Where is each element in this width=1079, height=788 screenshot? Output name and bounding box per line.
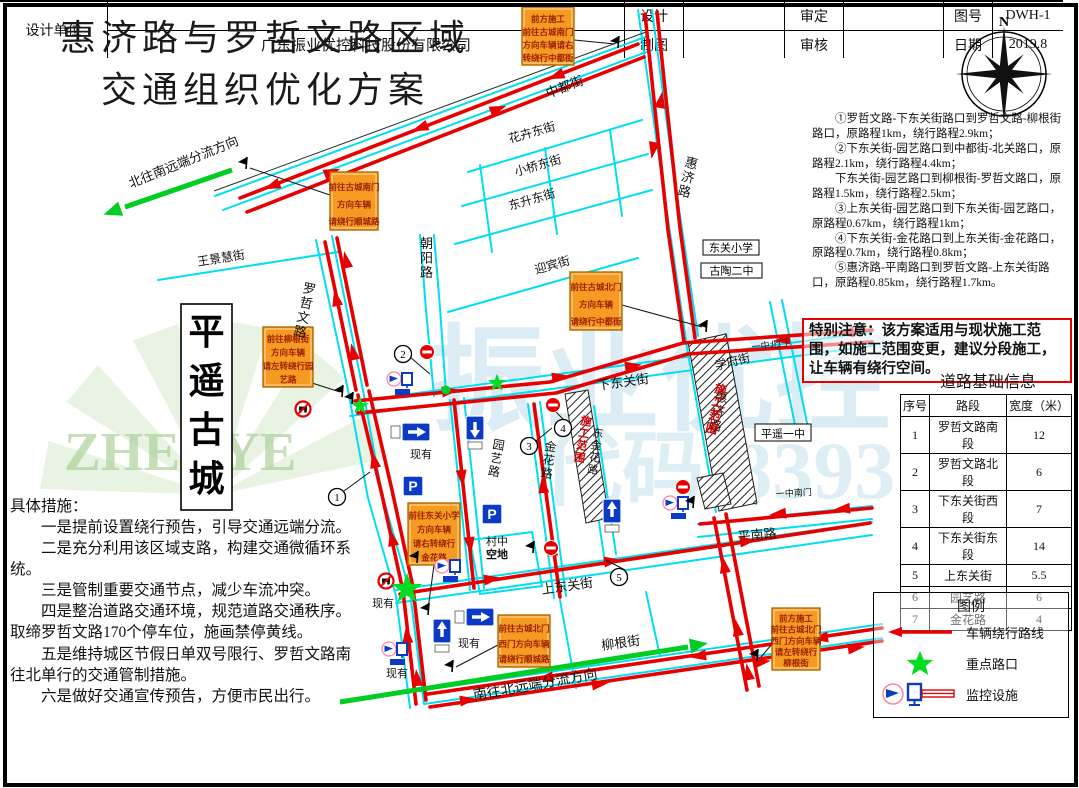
table-cell: 3: [901, 491, 930, 528]
svg-text:花卉东街: 花卉东街: [507, 118, 557, 146]
table-cell: 6: [1006, 454, 1071, 491]
svg-text:古陶二中: 古陶二中: [710, 264, 754, 278]
svg-text:艺路: 艺路: [279, 375, 297, 385]
street-label: 空地: [486, 547, 508, 561]
svg-text:P: P: [487, 506, 496, 522]
col-road: 路段: [930, 395, 1007, 417]
legend-label: 重点路口: [966, 654, 1018, 673]
legend-item-camera: 监控设施: [874, 679, 1068, 709]
svg-text:转绕行中都街: 转绕行中都街: [522, 53, 574, 63]
table-row: 2罗哲文路北段6: [901, 454, 1072, 491]
street-line: [646, 592, 660, 656]
svg-text:请绕行顺城路: 请绕行顺城路: [498, 654, 550, 664]
measure-item: 四是整治道路交通环境，规范道路交通秩序。取缔罗哲文路170个停车位，施画禁停黄线…: [10, 601, 366, 643]
landmark-box: 平遥一中: [755, 424, 811, 441]
right-arrow-sign: [391, 423, 430, 441]
sign-flag: [610, 36, 619, 48]
legend-label: 车辆绕行路线: [966, 623, 1044, 642]
title-line-2: 交通组织优化方案: [40, 64, 490, 116]
node-number: 2: [395, 346, 412, 363]
measures-panel: 具体措施： 一是提前设置绕行预告，引导交通远端分流。二是充分利用该区域支路，构建…: [10, 496, 366, 707]
camera-sign: [387, 372, 412, 395]
parking-sign: P: [403, 476, 423, 496]
table-cell: 7: [1006, 491, 1071, 528]
no-vehicles-sign: [379, 574, 394, 589]
table-row: 1罗哲文路南段12: [901, 417, 1072, 454]
street-label: 东升东街: [507, 186, 557, 213]
table-cell: 5.5: [1006, 565, 1071, 587]
table-cell: 4: [901, 528, 930, 565]
legend-item-key-node: 重点路口: [874, 648, 1068, 678]
svg-text:村中: 村中: [486, 534, 508, 548]
col-width: 宽度（米）: [1006, 395, 1071, 417]
compass-rose-icon: N: [948, 10, 1060, 126]
detour-route: [645, 14, 684, 342]
svg-text:上东关街: 上东关街: [540, 575, 594, 597]
svg-text:请绕行中都街: 请绕行中都街: [570, 317, 622, 327]
detour-note: ④下东关街-金花路口到上东关街-金花路口，原路程0.7km，绕行路程0.8km；: [812, 232, 1070, 262]
detour-notice-box: 前往古城南门方向车辆请绕行顺城路: [328, 172, 380, 230]
svg-text:请左转绕行: 请左转绕行: [775, 647, 818, 657]
svg-text:现有: 现有: [372, 596, 394, 610]
route-arrow: [717, 555, 731, 574]
svg-text:西门方向车辆: 西门方向车辆: [770, 636, 822, 646]
svg-text:请左转绕行园: 请左转绕行园: [262, 361, 313, 371]
street-line: [158, 252, 338, 280]
svg-text:方向车辆: 方向车辆: [337, 199, 372, 209]
col-index: 序号: [901, 395, 930, 417]
signal-dot: [442, 386, 451, 395]
sign-flag: [420, 603, 429, 615]
camera-sign: [382, 642, 407, 665]
street-label: 一中南门: [776, 486, 813, 499]
svg-text:前往东关小学: 前往东关小学: [408, 511, 460, 521]
legend-item-detour: 车辆绕行路线: [874, 617, 1068, 647]
node-number: 4: [555, 420, 572, 437]
sign-flag: [525, 541, 534, 553]
svg-text:朝阳路: 朝阳路: [420, 236, 433, 280]
road-table-title: 道路基础信息: [900, 368, 1076, 392]
street-label: 迎宾街: [533, 253, 572, 277]
legend-title: 图例: [874, 596, 1068, 616]
measure-item: 二是充分利用该区域支路，构建交通微循环系统。: [10, 538, 366, 580]
svg-text:请绕行顺城路: 请绕行顺城路: [328, 217, 380, 227]
svg-text:遥: 遥: [188, 361, 224, 401]
svg-text:现有: 现有: [458, 636, 480, 650]
svg-text:惠济路: 惠济路: [676, 154, 699, 200]
svg-text:古: 古: [188, 410, 224, 450]
svg-text:前往古城北门: 前往古城北门: [770, 625, 821, 635]
no-vehicles-sign: [296, 402, 311, 417]
svg-text:现有: 现有: [410, 447, 432, 461]
svg-text:方向车辆请右: 方向车辆请右: [522, 40, 574, 50]
street-label: 现有: [372, 596, 394, 610]
detour-notice-box: 前方施工前往古城北门西门方向车辆请左转绕行柳根街: [770, 608, 822, 670]
legend-label: 监控设施: [966, 685, 1018, 704]
street-label: 王景慧街: [196, 247, 246, 269]
street-label: 惠济路: [676, 154, 699, 200]
table-cell: 下东关街东段: [930, 528, 1007, 565]
detour-note: ③上东关街-园艺路口到下东关街-园艺路口，原路程0.67km，绕行路程1km；: [812, 202, 1070, 232]
table-row: 4下东关街东段14: [901, 528, 1072, 565]
green-diversion-arrow: [101, 202, 123, 222]
svg-text:请右转绕行: 请右转绕行: [413, 539, 456, 549]
svg-text:4: 4: [560, 423, 566, 435]
title-line-1: 惠济路与罗哲文路区域: [40, 12, 490, 64]
table-row: 3下东关街西段7: [901, 491, 1072, 528]
sign-flag: [238, 157, 247, 169]
svg-text:前往古城南门: 前往古城南门: [522, 27, 573, 37]
page-title: 惠济路与罗哲文路区域 交通组织优化方案: [40, 12, 490, 116]
svg-text:前往古城北门: 前往古城北门: [570, 282, 621, 292]
detour-note: 下东关街-园艺路口到柳根街-罗哲文路口，原路程1.5km，绕行路程2.5km；: [812, 172, 1070, 202]
measure-item: 六是做好交通宣传预告，方便市民出行。: [10, 686, 366, 707]
svg-text:2: 2: [400, 349, 406, 361]
detour-note: ②下东关街-园艺路口到中都街-北关路口，原路程2.1km，绕行路程4.4km；: [812, 142, 1070, 172]
table-cell: 2: [901, 454, 930, 491]
camera-sign: [435, 559, 460, 582]
table-cell: 罗哲文路北段: [930, 454, 1007, 491]
svg-text:方向车辆: 方向车辆: [417, 525, 452, 535]
svg-text:P: P: [408, 478, 417, 494]
svg-text:平南路: 平南路: [737, 526, 777, 544]
street-line: [610, 130, 622, 216]
table-cell: 12: [1006, 417, 1071, 454]
no-entry-sign: [676, 480, 691, 495]
svg-text:柳根街: 柳根街: [783, 658, 809, 668]
table-row: 5上东关街5.5: [901, 565, 1072, 587]
detour-note: ①罗哲文路-下东关街路口到罗哲文路-柳根街路口，原路程1km，绕行路程2.9km…: [812, 112, 1070, 142]
landmark-box: 东关小学: [703, 240, 759, 255]
svg-text:王景慧街: 王景慧街: [196, 247, 246, 269]
table-cell: 下东关街西段: [930, 491, 1007, 528]
svg-text:前往古城南门: 前往古城南门: [328, 182, 379, 192]
street-label: 现有: [386, 666, 408, 680]
detour-notes: ①罗哲文路-下东关街路口到罗哲文路-柳根街路口，原路程1km，绕行路程2.9km…: [812, 112, 1070, 291]
street-label: 上东关街: [540, 575, 594, 597]
parking-sign: P: [482, 504, 502, 524]
camera-icon: [874, 679, 966, 709]
svg-text:前往古城北门: 前往古城北门: [498, 624, 549, 634]
svg-text:现有: 现有: [386, 666, 408, 680]
street-label: 村中: [486, 534, 508, 548]
table-cell: 5: [901, 565, 930, 587]
detour-notice-box: 前方施工前往古城南门方向车辆请右转绕行中都街: [522, 7, 574, 65]
svg-text:一中南门: 一中南门: [776, 486, 813, 499]
measure-item: 五是维持城区节假日单双号限行、罗哲文路南往北单行的交通管制措施。: [10, 644, 366, 686]
street-label: 现有: [458, 636, 480, 650]
node-number: 5: [611, 569, 628, 586]
detour-route-icon: [874, 625, 966, 639]
svg-text:前方施工: 前方施工: [779, 613, 814, 623]
down-arrow-sign: [466, 416, 484, 449]
svg-text:方向车辆: 方向车辆: [271, 348, 306, 358]
node-number: 3: [521, 438, 538, 455]
key-intersection-star-icon: [874, 649, 966, 677]
detour-notice-box: 前往古城北门方向车辆请绕行中都街: [570, 272, 622, 330]
svg-text:方向车辆: 方向车辆: [579, 299, 614, 309]
watermark-text: ZHENYE: [64, 421, 296, 482]
svg-text:5: 5: [616, 572, 622, 584]
svg-text:北往南远端分流方向: 北往南远端分流方向: [127, 133, 241, 191]
drawing-sheet: 振业优控代码:8393ZHENYE前方施工前往古城南门方向车辆请右转绕行中都街前…: [0, 0, 1079, 788]
no-entry-sign: [544, 541, 559, 556]
svg-text:迎宾街: 迎宾街: [533, 253, 572, 277]
svg-text:东关小学: 东关小学: [709, 241, 753, 255]
landmark-box: 古陶二中: [701, 263, 762, 278]
table-cell: 罗哲文路南段: [930, 417, 1007, 454]
svg-text:平遥一中: 平遥一中: [761, 428, 805, 441]
measure-item: 一是提前设置绕行预告，引导交通远端分流。: [10, 517, 366, 538]
no-entry-sign: [546, 398, 561, 413]
table-cell: 14: [1006, 528, 1071, 565]
legend: 图例 车辆绕行路线 重点路口 监控设施: [873, 592, 1069, 718]
measures-heading: 具体措施：: [10, 496, 366, 517]
up-arrow-sign: [603, 499, 621, 532]
table-cell: 上东关街: [930, 565, 1007, 587]
svg-text:平: 平: [188, 312, 224, 352]
svg-text:东升东街: 东升东街: [507, 186, 557, 213]
sign-flag: [444, 660, 453, 672]
street-label: 现有: [410, 447, 432, 461]
street-label: 北往南远端分流方向: [127, 133, 241, 191]
up-arrow-sign: [433, 619, 451, 652]
street-label: 平南路: [737, 526, 777, 544]
svg-text:城: 城: [188, 459, 224, 499]
svg-text:空地: 空地: [486, 547, 508, 561]
table-cell: 1: [901, 417, 930, 454]
svg-text:柳根街: 柳根街: [600, 633, 641, 653]
measure-item: 三是管制重要交通节点，减少车流冲突。: [10, 580, 366, 601]
ancient-city-box: 平遥古城: [181, 304, 232, 510]
svg-text:前方施工: 前方施工: [531, 14, 566, 24]
street-label: 朝阳路: [420, 236, 433, 280]
detour-notice-box: 前往古城北门西门方向车辆请绕行顺城路: [498, 615, 550, 667]
street-label: 柳根街: [600, 633, 641, 653]
street-label: 花卉东街: [507, 118, 557, 146]
right-arrow-sign: [455, 608, 494, 626]
detour-note: ⑤惠济路-平南路口到罗哲文路-上东关街路口，原路程0.85km，绕行路程1.7k…: [812, 261, 1070, 291]
no-entry-sign: [420, 345, 435, 360]
svg-text:3: 3: [526, 441, 532, 453]
svg-text:西门方向车辆: 西门方向车辆: [498, 639, 550, 649]
leader-line: [428, 565, 434, 609]
leader-line: [574, 40, 615, 44]
street-line: [480, 165, 492, 252]
